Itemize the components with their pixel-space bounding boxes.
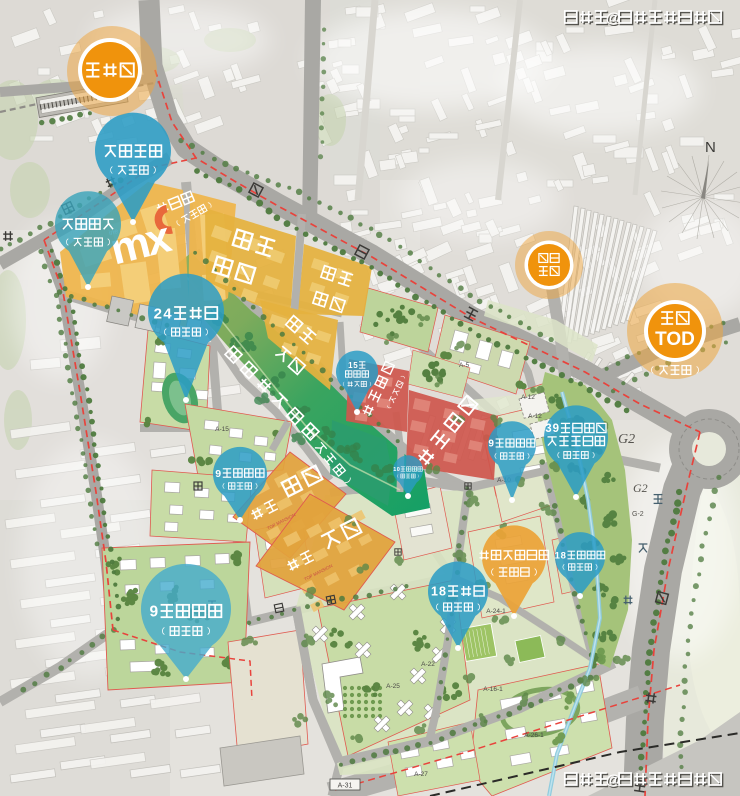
svg-text:A-15: A-15 <box>215 426 229 433</box>
svg-text:N: N <box>705 139 716 156</box>
svg-text:5: 5 <box>353 361 358 370</box>
svg-text:A-5: A-5 <box>459 362 470 369</box>
svg-text:0: 0 <box>397 467 400 473</box>
svg-text:9: 9 <box>149 604 158 621</box>
svg-text:@: @ <box>606 9 621 26</box>
svg-text:A-16-1: A-16-1 <box>483 686 503 693</box>
svg-text:A-12: A-12 <box>528 413 542 420</box>
svg-text:A-26-1: A-26-1 <box>524 732 544 739</box>
svg-text:3: 3 <box>545 423 551 435</box>
svg-text:1: 1 <box>431 585 438 599</box>
svg-text:8: 8 <box>561 550 566 561</box>
svg-text:G2: G2 <box>633 481 648 495</box>
svg-text:9: 9 <box>488 439 494 450</box>
svg-text:9: 9 <box>215 468 221 480</box>
svg-text:TOD: TOD <box>655 329 695 350</box>
svg-text:A-22: A-22 <box>421 661 435 668</box>
svg-text:8: 8 <box>439 585 446 599</box>
svg-text:G2: G2 <box>618 432 635 447</box>
svg-text:A-31: A-31 <box>338 783 353 790</box>
svg-text:2: 2 <box>154 305 162 322</box>
svg-text:A-24-1: A-24-1 <box>486 608 506 615</box>
svg-text:A-12: A-12 <box>521 394 535 401</box>
svg-text:4: 4 <box>163 305 172 322</box>
svg-text:A-25: A-25 <box>386 683 400 690</box>
svg-text:@: @ <box>606 771 621 788</box>
svg-text:A-27: A-27 <box>414 771 428 778</box>
svg-text:1: 1 <box>555 550 561 561</box>
svg-text:9: 9 <box>553 423 559 435</box>
svg-text:G-2: G-2 <box>632 511 644 518</box>
